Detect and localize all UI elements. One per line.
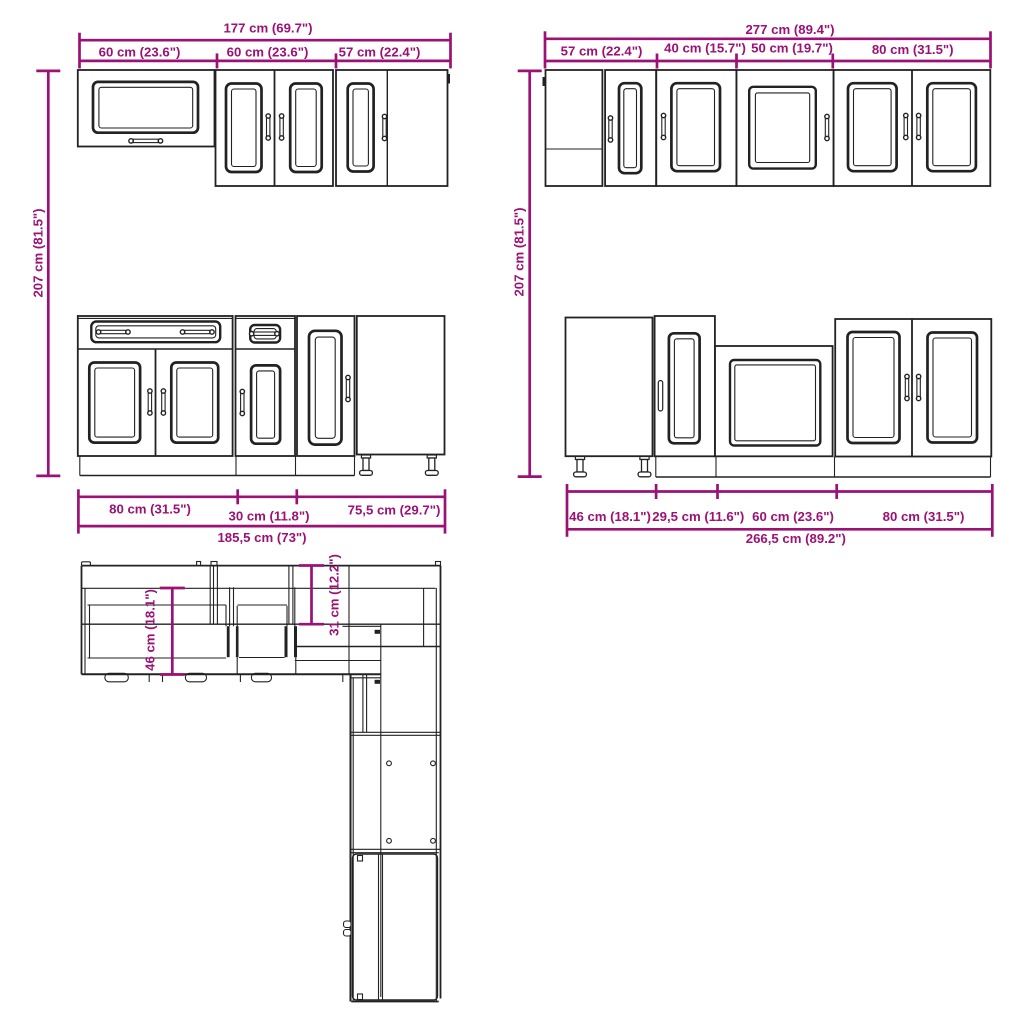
svg-text:31 cm (12.2"): 31 cm (12.2")	[327, 554, 342, 636]
svg-text:57 cm (22.4"): 57 cm (22.4")	[339, 45, 421, 60]
svg-text:46 cm (18.1"): 46 cm (18.1")	[569, 509, 651, 524]
svg-text:30 cm (11.8"): 30 cm (11.8")	[228, 509, 309, 524]
svg-text:75,5 cm (29.7"): 75,5 cm (29.7")	[348, 503, 441, 518]
svg-text:80 cm (31.5"): 80 cm (31.5")	[872, 42, 954, 57]
svg-text:277 cm (89.4"): 277 cm (89.4")	[745, 22, 834, 37]
svg-text:60 cm (23.6"): 60 cm (23.6")	[752, 509, 834, 524]
svg-text:80 cm (31.5"): 80 cm (31.5")	[109, 502, 191, 517]
svg-text:60 cm (23.6"): 60 cm (23.6")	[99, 45, 181, 60]
svg-text:46 cm (18.1"): 46 cm (18.1")	[143, 589, 158, 671]
svg-text:266,5 cm (89.2"): 266,5 cm (89.2")	[746, 531, 846, 546]
svg-text:207 cm (81.5"): 207 cm (81.5")	[31, 208, 46, 297]
svg-text:207 cm (81.5"): 207 cm (81.5")	[512, 207, 527, 296]
svg-text:60 cm (23.6"): 60 cm (23.6")	[227, 45, 309, 60]
svg-text:185,5 cm (73"): 185,5 cm (73")	[217, 530, 306, 545]
svg-text:50 cm (19.7"): 50 cm (19.7")	[751, 40, 833, 55]
svg-text:40 cm (15.7"): 40 cm (15.7")	[664, 40, 746, 55]
svg-text:57 cm (22.4"): 57 cm (22.4")	[561, 44, 643, 59]
svg-text:177 cm (69.7"): 177 cm (69.7")	[223, 21, 312, 36]
svg-text:80 cm (31.5"): 80 cm (31.5")	[883, 509, 965, 524]
svg-text:29,5 cm (11.6"): 29,5 cm (11.6")	[652, 509, 744, 524]
